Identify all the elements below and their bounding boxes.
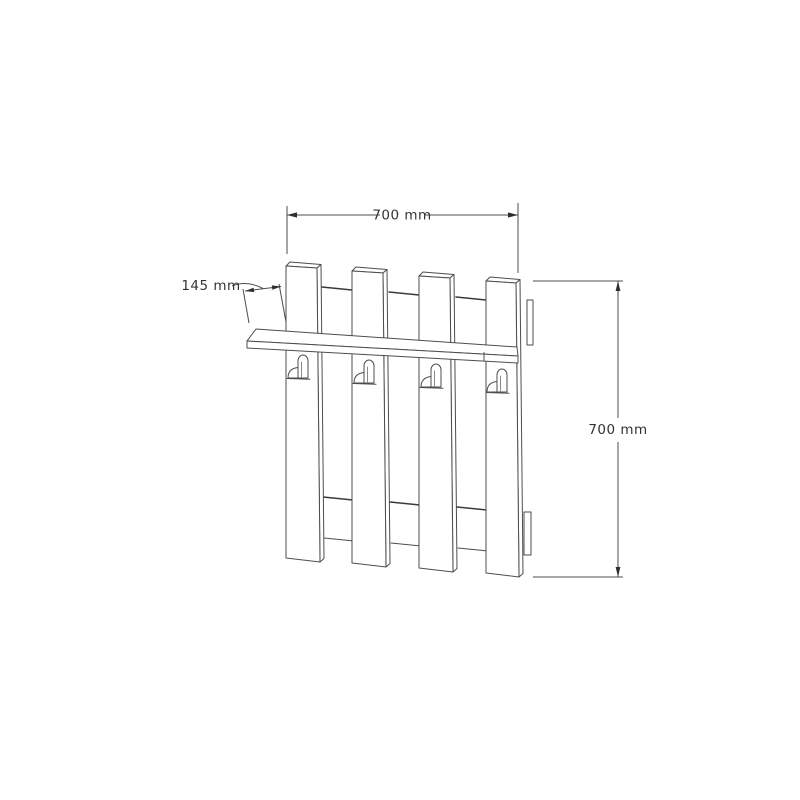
dimension-width: 700 mm bbox=[287, 203, 518, 273]
top-rail-end bbox=[527, 300, 533, 345]
hook-upright bbox=[298, 355, 308, 378]
plank-front-face bbox=[286, 266, 320, 562]
top-rail-segment bbox=[322, 287, 352, 290]
plank-front-face bbox=[419, 276, 453, 572]
depth-extension-line-right bbox=[279, 284, 286, 322]
bottom-rail-segment-top bbox=[323, 497, 353, 500]
coat-rack-dimension-drawing: 700 mm 700 mm 145 mm bbox=[0, 0, 800, 800]
depth-extension-line-left bbox=[243, 289, 249, 323]
bottom-rail-segment-bottom bbox=[324, 538, 354, 541]
arrowhead-left-icon bbox=[287, 212, 297, 217]
dimension-shelf-depth: 145 mm bbox=[181, 278, 286, 323]
height-dimension-label: 700 mm bbox=[588, 422, 647, 438]
technical-drawing-canvas: 700 mm 700 mm 145 mm bbox=[0, 0, 800, 800]
arrowhead-right-icon bbox=[508, 212, 518, 217]
arrowhead-left-icon bbox=[245, 288, 254, 292]
dimension-height: 700 mm bbox=[533, 281, 648, 577]
hook-upright bbox=[497, 369, 507, 392]
hook-base-line bbox=[287, 379, 310, 380]
hook-base-line bbox=[420, 388, 443, 389]
top-rail-segment bbox=[456, 297, 486, 300]
hook-upright bbox=[431, 364, 441, 387]
bottom-rail-end bbox=[524, 512, 531, 555]
hook-base-line bbox=[486, 393, 509, 394]
hook-base-line bbox=[353, 384, 376, 385]
width-dimension-label: 700 mm bbox=[372, 208, 431, 224]
bottom-rail-segment-top bbox=[457, 507, 487, 510]
plank-3 bbox=[419, 272, 457, 572]
plank-1 bbox=[286, 262, 324, 562]
hook-upright bbox=[364, 360, 374, 383]
arrowhead-down-icon bbox=[616, 567, 621, 577]
arrowhead-up-icon bbox=[616, 281, 621, 291]
plank-4 bbox=[486, 277, 523, 577]
top-rail-segment bbox=[389, 292, 419, 295]
bottom-rail-segment-bottom bbox=[391, 543, 421, 546]
plank-2 bbox=[352, 267, 390, 567]
bottom-rail-segment-top bbox=[390, 502, 420, 505]
shelf-depth-dimension-label: 145 mm bbox=[181, 278, 240, 294]
bottom-rail-segment-bottom bbox=[458, 548, 488, 551]
plank-front-face bbox=[486, 281, 519, 577]
plank-front-face bbox=[352, 271, 386, 567]
